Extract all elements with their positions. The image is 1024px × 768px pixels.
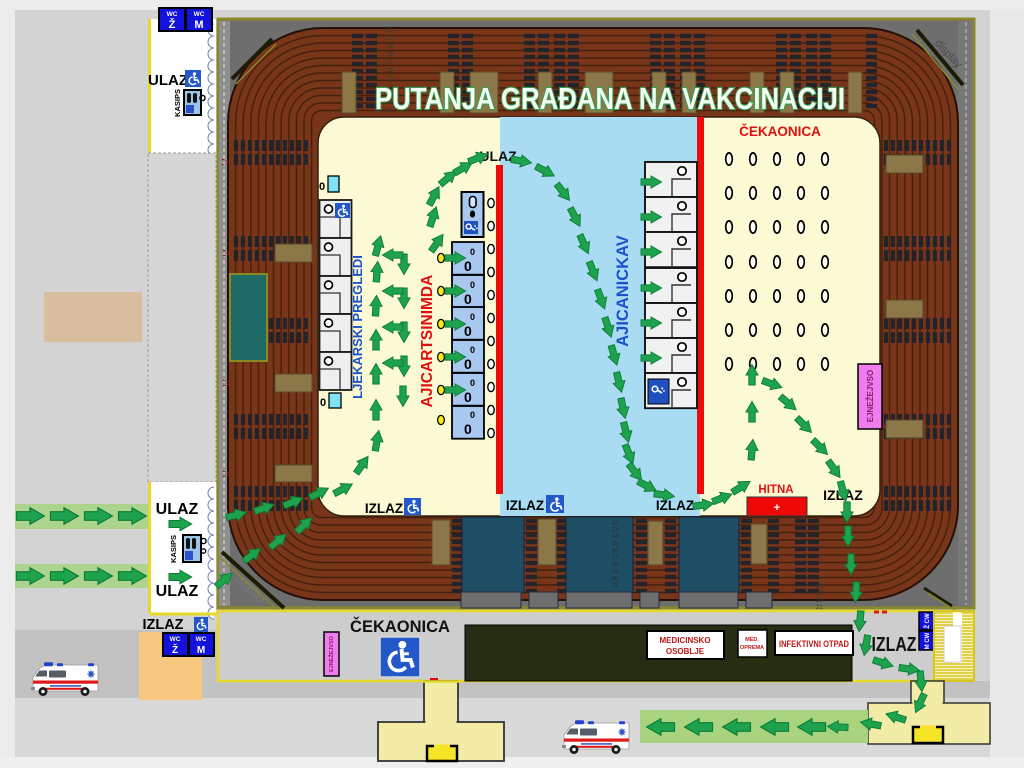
svg-text:EJNEŽEJVSO: EJNEŽEJVSO: [327, 635, 335, 672]
svg-text:WC: WC: [196, 636, 207, 643]
svg-text:18: 18: [612, 562, 618, 568]
svg-text:ČEKAONICA: ČEKAONICA: [350, 617, 450, 636]
svg-text:KASIPS: KASIPS: [173, 89, 182, 117]
svg-text:LJEKARSKI PREGLEDI: LJEKARSKI PREGLEDI: [350, 255, 365, 399]
svg-text:0: 0: [470, 280, 475, 290]
svg-text:12: 12: [612, 520, 618, 526]
svg-text:Ž: Ž: [169, 18, 176, 31]
svg-text:OSOBLJE: OSOBLJE: [666, 647, 705, 656]
svg-text:IZLAZ: IZLAZ: [506, 498, 544, 513]
svg-text:21: 21: [612, 583, 618, 589]
svg-text:IZLAZ: IZLAZ: [142, 617, 183, 633]
svg-text:15: 15: [612, 541, 618, 547]
svg-text:HITNA: HITNA: [758, 484, 793, 496]
svg-text:MEDICINSKO: MEDICINSKO: [659, 636, 710, 645]
svg-text:IZLAZ: IZLAZ: [872, 634, 917, 656]
svg-text:16: 16: [386, 67, 394, 74]
svg-text:ČEKAONICA: ČEKAONICA: [739, 124, 821, 139]
svg-text:AJICANICKAV: AJICANICKAV: [614, 235, 632, 347]
svg-text:Ž CW: Ž CW: [923, 613, 931, 629]
svg-text:19: 19: [612, 569, 618, 575]
svg-text:16: 16: [612, 548, 618, 554]
svg-text:Ž: Ž: [172, 643, 178, 656]
svg-text:ULAZ: ULAZ: [148, 72, 188, 89]
svg-text:+: +: [774, 502, 780, 514]
svg-text:ULAZ: ULAZ: [156, 501, 199, 518]
svg-text:17: 17: [386, 59, 394, 66]
svg-text:0: 0: [464, 356, 472, 372]
svg-text:OPREMA: OPREMA: [740, 645, 764, 651]
svg-text:0: 0: [470, 345, 475, 355]
svg-text:INFEKTIVNI OTPAD: INFEKTIVNI OTPAD: [779, 639, 849, 649]
svg-text:WC: WC: [170, 636, 181, 643]
svg-text:0: 0: [464, 323, 472, 339]
svg-text:M CW: M CW: [925, 632, 931, 649]
svg-text:MED.: MED.: [745, 637, 759, 643]
svg-text:0: 0: [464, 421, 472, 437]
svg-text:19: 19: [386, 43, 394, 50]
svg-text:AJICARTSINIMDA: AJICARTSINIMDA: [419, 275, 436, 408]
svg-text:0: 0: [320, 397, 326, 409]
svg-text:0: 0: [464, 389, 472, 405]
svg-text:PUTANJA GRAĐANA NA VAKCINACIJI: PUTANJA GRAĐANA NA VAKCINACIJI: [375, 81, 845, 116]
svg-text:20: 20: [816, 598, 823, 604]
svg-text:0: 0: [464, 291, 472, 307]
svg-text:WC: WC: [194, 11, 205, 18]
svg-text:0: 0: [464, 258, 472, 274]
svg-text:IZLAZ: IZLAZ: [656, 498, 694, 513]
svg-text:18: 18: [386, 51, 394, 58]
svg-text:20: 20: [612, 576, 618, 582]
svg-text:WC: WC: [167, 11, 178, 18]
svg-text:KASIPS: KASIPS: [169, 535, 178, 563]
svg-text:20: 20: [386, 35, 394, 42]
svg-text:0: 0: [470, 312, 475, 322]
svg-text:0: 0: [319, 181, 325, 193]
svg-text:M: M: [194, 19, 203, 31]
svg-text:0: 0: [470, 247, 475, 257]
svg-text:ULAZ: ULAZ: [156, 583, 199, 600]
svg-text:18: 18: [816, 584, 823, 590]
svg-text:IZLAZ: IZLAZ: [365, 501, 403, 516]
svg-text:14: 14: [612, 534, 618, 540]
svg-text:13: 13: [612, 527, 618, 533]
svg-text:EJNEŽEJVSO: EJNEŽEJVSO: [866, 370, 875, 422]
svg-text:21: 21: [386, 27, 394, 34]
svg-text:0: 0: [470, 410, 475, 420]
svg-text:19: 19: [816, 591, 823, 597]
svg-text:M: M: [197, 645, 205, 656]
svg-text:17: 17: [612, 555, 618, 561]
svg-text:0: 0: [470, 378, 475, 388]
